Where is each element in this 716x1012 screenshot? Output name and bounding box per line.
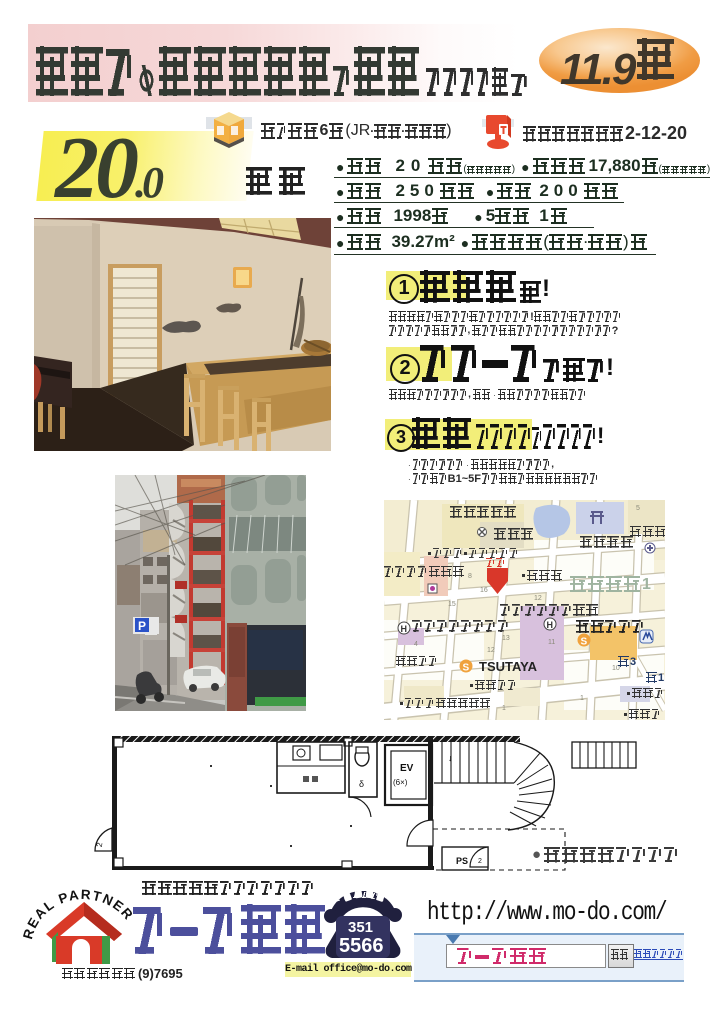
svg-text:S: S [581,637,588,648]
svg-text:2: 2 [478,858,482,865]
svg-text:EV: EV [400,763,414,774]
svg-text:4: 4 [414,641,418,648]
svg-text:S: S [463,663,470,674]
svg-text:13: 13 [502,635,510,642]
svg-text:351: 351 [348,919,373,936]
svg-text:PS: PS [456,856,468,866]
svg-text:16: 16 [480,587,488,594]
svg-text:1: 1 [502,705,506,712]
svg-text:P: P [138,619,146,633]
svg-text:8: 8 [468,573,472,580]
svg-text:5: 5 [636,505,640,512]
svg-text:H: H [401,624,408,634]
svg-text:12: 12 [487,647,495,654]
svg-text:11: 11 [548,639,555,646]
svg-text:H: H [547,620,554,630]
svg-text:12: 12 [534,595,542,602]
svg-text:1: 1 [580,695,584,702]
svg-text:5566: 5566 [339,935,384,957]
svg-text:(6×): (6×) [393,778,408,787]
svg-text:15: 15 [448,601,456,608]
svg-text:↓: ↓ [448,753,453,763]
svg-text:δ: δ [359,779,364,789]
